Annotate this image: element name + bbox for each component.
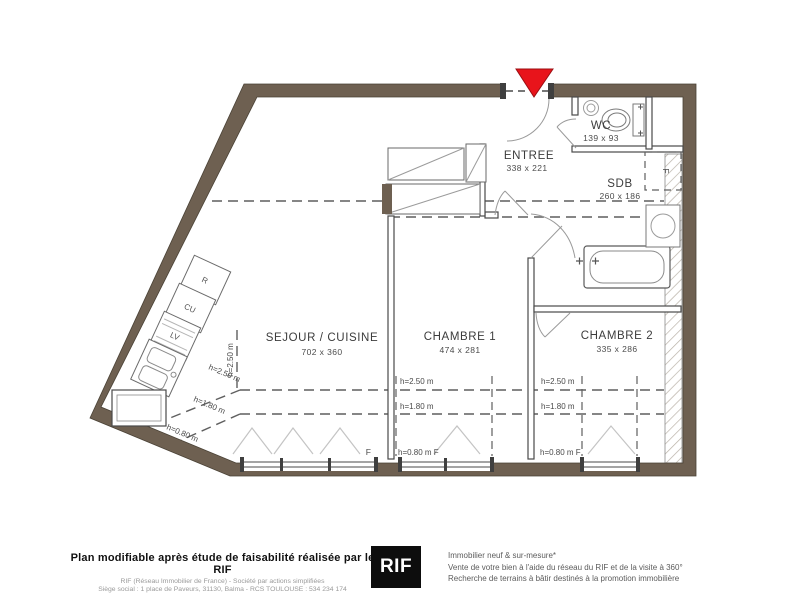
sdb-window-label: F	[661, 168, 671, 173]
svg-text:h=0.80 m F: h=0.80 m F	[540, 448, 581, 457]
svg-text:h=1.80 m: h=1.80 m	[541, 402, 575, 411]
room-dims-chambre1: 474 x 281	[440, 345, 481, 355]
room-dims-chambre2: 335 x 286	[597, 344, 638, 354]
room-label-chambre1: CHAMBRE 1	[424, 331, 497, 343]
room-dims-entree: 338 x 221	[507, 163, 548, 173]
rif-logo: RIF	[371, 546, 421, 588]
footer-company-line: RIF (Réseau Immobilier de France) - Soci…	[70, 578, 375, 586]
svg-text:h=0.80 m F: h=0.80 m F	[398, 448, 439, 457]
svg-text:h=2.50 m: h=2.50 m	[400, 377, 434, 386]
height-labels: h=2.50 m h=1.80 m h=0.80 m h=2.50 m h=2.…	[165, 343, 581, 457]
floor-plan-page: R CU LV	[0, 0, 800, 600]
entry-closet	[382, 144, 486, 214]
room-dims-sdb: 260 x 186	[600, 191, 641, 201]
footer-right-block: Immobilier neuf & sur-mesure* Vente de v…	[448, 550, 778, 585]
corner-closet	[112, 390, 166, 426]
bathtub	[576, 246, 670, 288]
sejour-window-label: F	[366, 447, 371, 457]
room-label-entree: ENTREE	[504, 150, 554, 162]
footer-service-line-1: Immobilier neuf & sur-mesure*	[448, 550, 778, 562]
room-label-chambre2: CHAMBRE 2	[581, 330, 654, 342]
rif-logo-text: RIF	[380, 556, 412, 578]
room-dims-sejour: 702 x 360	[302, 347, 343, 357]
floor-plan-drawing: R CU LV	[0, 0, 800, 540]
svg-text:h=1.80 m: h=1.80 m	[400, 402, 434, 411]
entry-door-opening	[500, 82, 554, 141]
svg-text:h=2.50 m: h=2.50 m	[226, 343, 235, 377]
wc-handbasin	[584, 101, 599, 116]
window-bay-dashes	[396, 376, 637, 456]
footer-left-block: Plan modifiable après étude de faisabili…	[70, 552, 375, 594]
room-label-sejour: SEJOUR / CUISINE	[266, 332, 378, 344]
footer-address-line: Siège social : 1 place de Paveurs, 31130…	[70, 586, 375, 594]
footer-service-line-2: Vente de votre bien à l'aide du réseau d…	[448, 562, 778, 574]
footer: Plan modifiable après étude de faisabili…	[0, 540, 800, 600]
footer-headline: Plan modifiable après étude de faisabili…	[70, 552, 375, 576]
windows	[240, 457, 640, 472]
footer-service-line-3: Recherche de terrains à bâtir destinés à…	[448, 573, 778, 585]
sdb-washbasin	[646, 205, 680, 247]
room-dims-wc: 139 x 93	[583, 133, 619, 143]
svg-text:h=2.50 m: h=2.50 m	[541, 377, 575, 386]
room-label-sdb: SDB	[607, 178, 632, 190]
room-label-wc: WC	[591, 120, 611, 132]
